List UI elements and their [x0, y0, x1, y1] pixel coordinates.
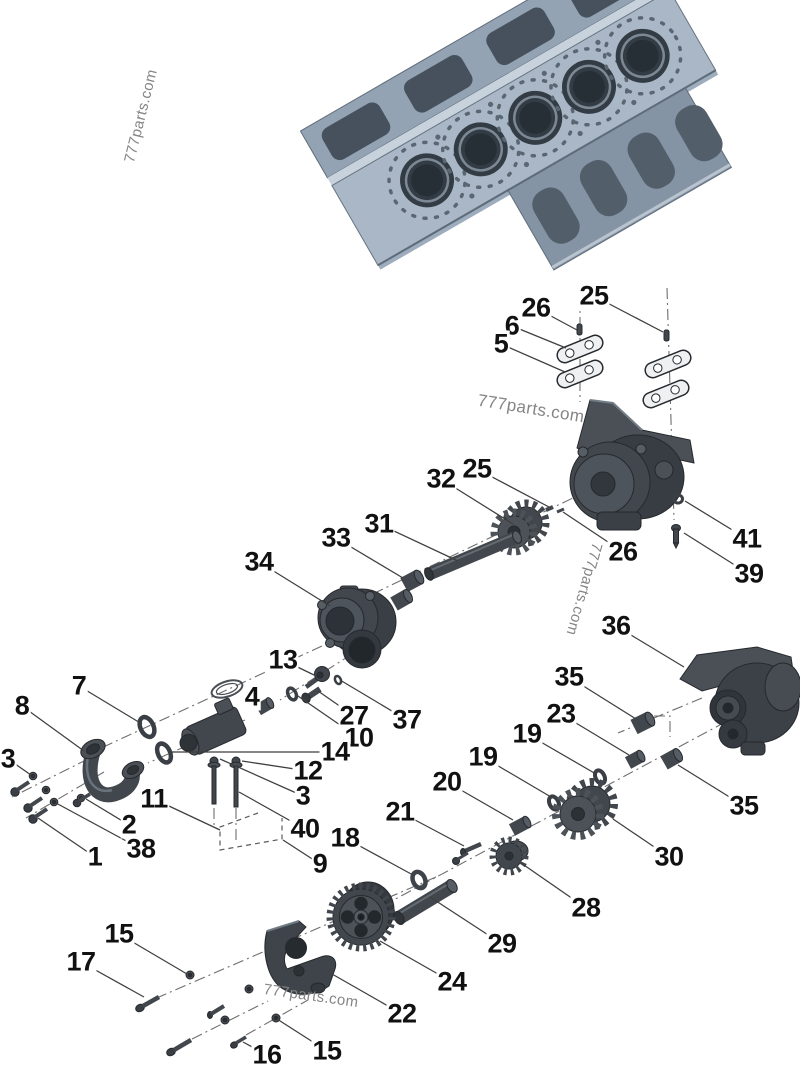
bolt-17a: [134, 997, 159, 1013]
leader-line-40: [239, 792, 305, 829]
gear-24: [330, 882, 394, 948]
nut-38: [50, 798, 58, 806]
bolt-17b: [165, 1040, 191, 1057]
gear-30: [556, 782, 614, 836]
bushing-35a: [634, 711, 657, 728]
leader-line-34: [259, 562, 330, 606]
oil-pump-34: [318, 586, 397, 668]
leader-line-19: [483, 757, 551, 797]
leader-line-12: [242, 761, 308, 771]
leader-line-25: [477, 469, 549, 507]
gasket-right-lower: [641, 378, 691, 410]
nut-a: [42, 786, 50, 794]
leader-line-15: [119, 934, 187, 974]
leader-line-25: [594, 296, 663, 332]
leader-line-32: [441, 479, 513, 524]
leader-line-27: [318, 691, 354, 716]
leader-line-4: [252, 697, 261, 704]
leader-line-36: [616, 626, 684, 667]
washer-41: [674, 495, 683, 503]
leader-line-5: [501, 344, 565, 372]
drive-pin-26: [557, 509, 564, 512]
parts: [11, 324, 800, 1057]
gasket-oval: [209, 677, 244, 701]
leader-line-31: [379, 524, 458, 561]
nut-15a: [186, 971, 194, 979]
parts-diagram-page: 777parts.com777parts.com777parts.com777p…: [0, 0, 800, 1067]
bushing-33a: [404, 569, 426, 586]
nut-15b: [245, 985, 253, 993]
leader-line-20: [447, 782, 513, 820]
leader-line-41: [685, 501, 747, 539]
leader-line-39: [684, 533, 749, 574]
leader-line-22: [332, 974, 402, 1014]
engine-block: [300, 0, 761, 345]
leader-line-3: [8, 759, 31, 775]
pin-26: [577, 324, 582, 335]
gear-28: [493, 840, 528, 872]
bushing-20: [512, 815, 533, 830]
main-oil-pump: [570, 400, 694, 530]
oring-14: [154, 741, 173, 764]
leader-line-38: [56, 803, 141, 849]
nut-15c: [221, 1016, 229, 1024]
leader-line-33: [336, 538, 403, 578]
leader-line-2: [86, 799, 129, 825]
nut-3: [29, 772, 37, 780]
pin-25: [664, 330, 669, 341]
scavenge-pump-36: [680, 647, 800, 755]
bolt-1: [29, 809, 47, 823]
leader-line-35: [569, 677, 636, 719]
leader-line-1: [38, 818, 95, 857]
gasket-right-upper: [643, 348, 693, 380]
bolt-39: [672, 525, 681, 549]
washer-10: [286, 687, 298, 702]
bolt-21b: [453, 853, 469, 865]
bolt-16: [230, 1037, 246, 1049]
leader-line-35: [678, 765, 744, 806]
leader-line-21: [400, 812, 464, 846]
bolt-left-a: [11, 782, 29, 796]
leader-line-9: [283, 840, 320, 864]
leader-line-29: [430, 897, 502, 944]
leader-line-10: [295, 694, 359, 738]
elbow-8: [78, 735, 147, 794]
leader-line-17: [81, 962, 144, 997]
valve-plunger-13: [306, 667, 330, 688]
leader-line-8: [22, 706, 84, 751]
drive-pin-25: [546, 507, 553, 510]
leader-line-24: [380, 941, 452, 982]
leader-line-16: [243, 1042, 267, 1055]
leader-line-18: [345, 838, 413, 875]
leader-line-28: [521, 863, 586, 908]
hidden-outline-11: [220, 813, 282, 850]
leader-line-7: [79, 686, 142, 724]
bushing-35b: [664, 747, 684, 763]
bracket-22: [265, 921, 336, 994]
shaft-31: [423, 529, 523, 581]
stud-mid: [208, 1006, 225, 1019]
suction-fitting: [171, 696, 248, 760]
leader-line-26: [536, 308, 577, 330]
leader-line-11: [154, 799, 220, 830]
leader-line-6: [512, 326, 566, 348]
leader-line-30: [613, 819, 669, 857]
bushing-23: [628, 749, 647, 763]
bolt-27: [300, 689, 320, 704]
leader-line-23: [561, 714, 629, 755]
bushing-33b: [394, 588, 414, 604]
leader-line-15: [277, 1019, 327, 1051]
leader-line-13: [283, 660, 314, 675]
stud-40: [208, 757, 220, 804]
leader-line-19: [527, 734, 596, 774]
bolt-left-b: [24, 798, 42, 812]
diagram-art: [0, 0, 800, 1067]
